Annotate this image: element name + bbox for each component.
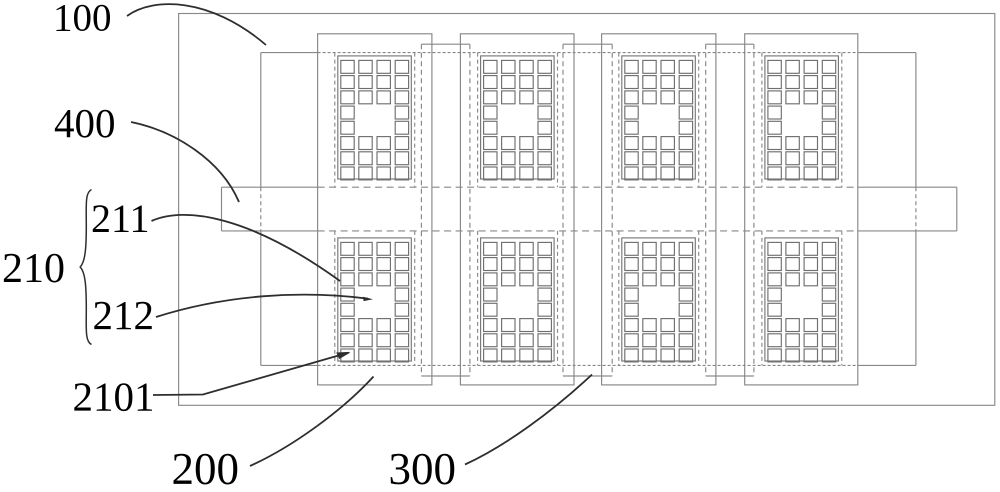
svg-text:100: 100 <box>53 0 112 40</box>
svg-text:300: 300 <box>389 444 457 487</box>
svg-text:2101: 2101 <box>73 374 155 420</box>
svg-text:212: 212 <box>93 292 155 338</box>
svg-text:400: 400 <box>54 100 116 146</box>
svg-text:211: 211 <box>91 196 150 241</box>
svg-text:210: 210 <box>2 246 65 292</box>
svg-text:200: 200 <box>172 444 240 487</box>
